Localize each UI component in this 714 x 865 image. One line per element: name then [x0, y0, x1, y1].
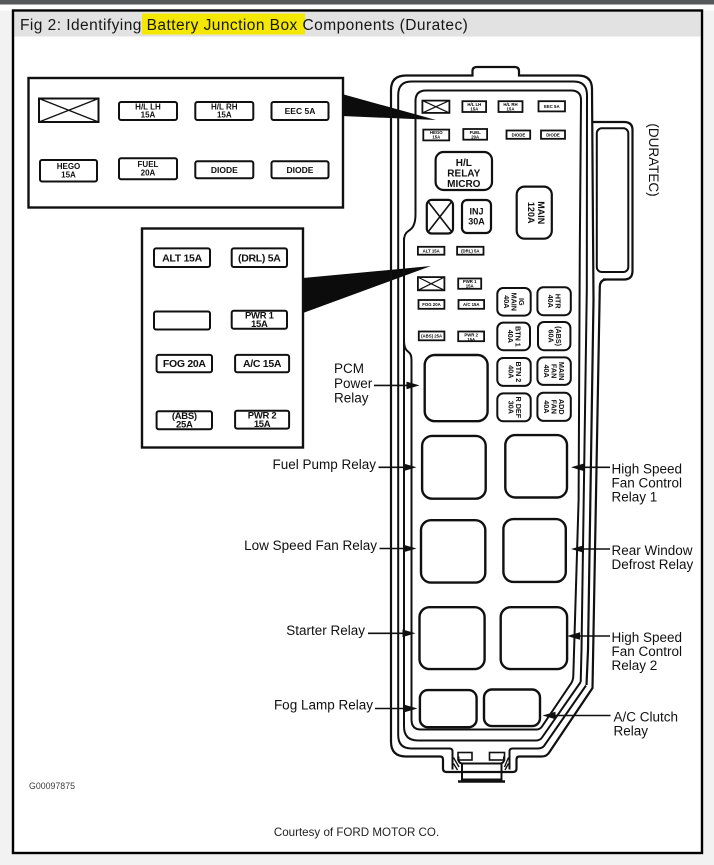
- svg-text:DIODE: DIODE: [546, 132, 560, 137]
- svg-text:DIODE: DIODE: [512, 132, 526, 137]
- svg-text:15A: 15A: [467, 337, 475, 342]
- svg-text:15A: 15A: [507, 106, 515, 111]
- svg-text:A/C Clutch: A/C Clutch: [614, 710, 679, 725]
- svg-text:15A: 15A: [254, 419, 271, 430]
- svg-text:15A: 15A: [61, 171, 76, 180]
- svg-text:EEC 5A: EEC 5A: [544, 104, 560, 109]
- svg-text:Low Speed Fan Relay: Low Speed Fan Relay: [244, 538, 377, 553]
- svg-text:(ABS) 25A: (ABS) 25A: [421, 334, 442, 339]
- svg-text:High Speed: High Speed: [612, 630, 683, 645]
- svg-text:MAIN: MAIN: [536, 201, 546, 224]
- svg-text:DIODE: DIODE: [287, 165, 314, 175]
- svg-text:25A: 25A: [176, 419, 193, 430]
- svg-text:15A: 15A: [141, 111, 156, 120]
- svg-text:G00097875: G00097875: [29, 781, 75, 791]
- svg-text:Relay: Relay: [614, 724, 649, 739]
- svg-text:ALT 15A: ALT 15A: [162, 253, 202, 265]
- svg-text:40A: 40A: [506, 365, 515, 378]
- svg-text:Relay 1: Relay 1: [612, 489, 658, 504]
- svg-text:H/L: H/L: [456, 158, 472, 169]
- svg-text:Courtesy of FORD MOTOR CO.: Courtesy of FORD MOTOR CO.: [274, 826, 439, 839]
- svg-text:(DURATEC): (DURATEC): [646, 123, 661, 196]
- svg-text:120A: 120A: [526, 202, 536, 224]
- svg-text:Fog Lamp Relay: Fog Lamp Relay: [274, 698, 373, 713]
- svg-text:INJ: INJ: [469, 207, 483, 217]
- svg-text:A/C 15A: A/C 15A: [243, 358, 282, 370]
- svg-text:40A: 40A: [506, 330, 515, 343]
- svg-text:(DRL) 5A: (DRL) 5A: [238, 253, 281, 265]
- svg-text:Defrost Relay: Defrost Relay: [612, 557, 694, 572]
- svg-text:(DRL) 5A: (DRL) 5A: [461, 249, 479, 254]
- svg-text:Fig 2: Identifying Battery Jun: Fig 2: Identifying Battery Junction Box …: [20, 17, 468, 34]
- svg-text:Starter Relay: Starter Relay: [286, 623, 365, 638]
- svg-text:15A: 15A: [251, 319, 268, 330]
- svg-text:ALT 15A: ALT 15A: [423, 249, 440, 254]
- svg-text:Fuel Pump Relay: Fuel Pump Relay: [272, 457, 376, 472]
- svg-text:15A: 15A: [470, 106, 478, 111]
- svg-text:Power: Power: [334, 376, 373, 391]
- svg-text:EEC 5A: EEC 5A: [285, 106, 316, 116]
- svg-text:MICRO: MICRO: [447, 179, 481, 190]
- svg-text:Relay: Relay: [334, 391, 369, 406]
- svg-text:40A: 40A: [546, 295, 555, 308]
- svg-text:Fan Control: Fan Control: [612, 644, 683, 659]
- svg-text:RELAY: RELAY: [447, 169, 480, 180]
- svg-text:60A: 60A: [546, 330, 555, 343]
- svg-text:Relay 2: Relay 2: [612, 658, 658, 673]
- svg-text:DIODE: DIODE: [211, 165, 238, 175]
- svg-text:Fan Control: Fan Control: [612, 475, 683, 490]
- svg-text:15A: 15A: [432, 135, 440, 140]
- svg-text:30A: 30A: [468, 217, 485, 227]
- svg-text:40A: 40A: [542, 400, 551, 413]
- svg-text:FOG 20A: FOG 20A: [422, 302, 440, 307]
- svg-text:15A: 15A: [217, 111, 232, 120]
- svg-text:20A: 20A: [471, 134, 479, 139]
- svg-text:FOG 20A: FOG 20A: [163, 358, 207, 370]
- svg-text:Rear Window: Rear Window: [612, 543, 693, 558]
- svg-text:20A: 20A: [141, 169, 156, 178]
- svg-text:15A: 15A: [466, 283, 474, 288]
- svg-text:40A: 40A: [502, 295, 511, 308]
- svg-text:40A: 40A: [542, 365, 551, 378]
- svg-text:30A: 30A: [506, 401, 515, 414]
- svg-text:High Speed: High Speed: [612, 461, 683, 476]
- svg-text:PCM: PCM: [334, 361, 364, 376]
- svg-text:A/C 15A: A/C 15A: [463, 302, 479, 307]
